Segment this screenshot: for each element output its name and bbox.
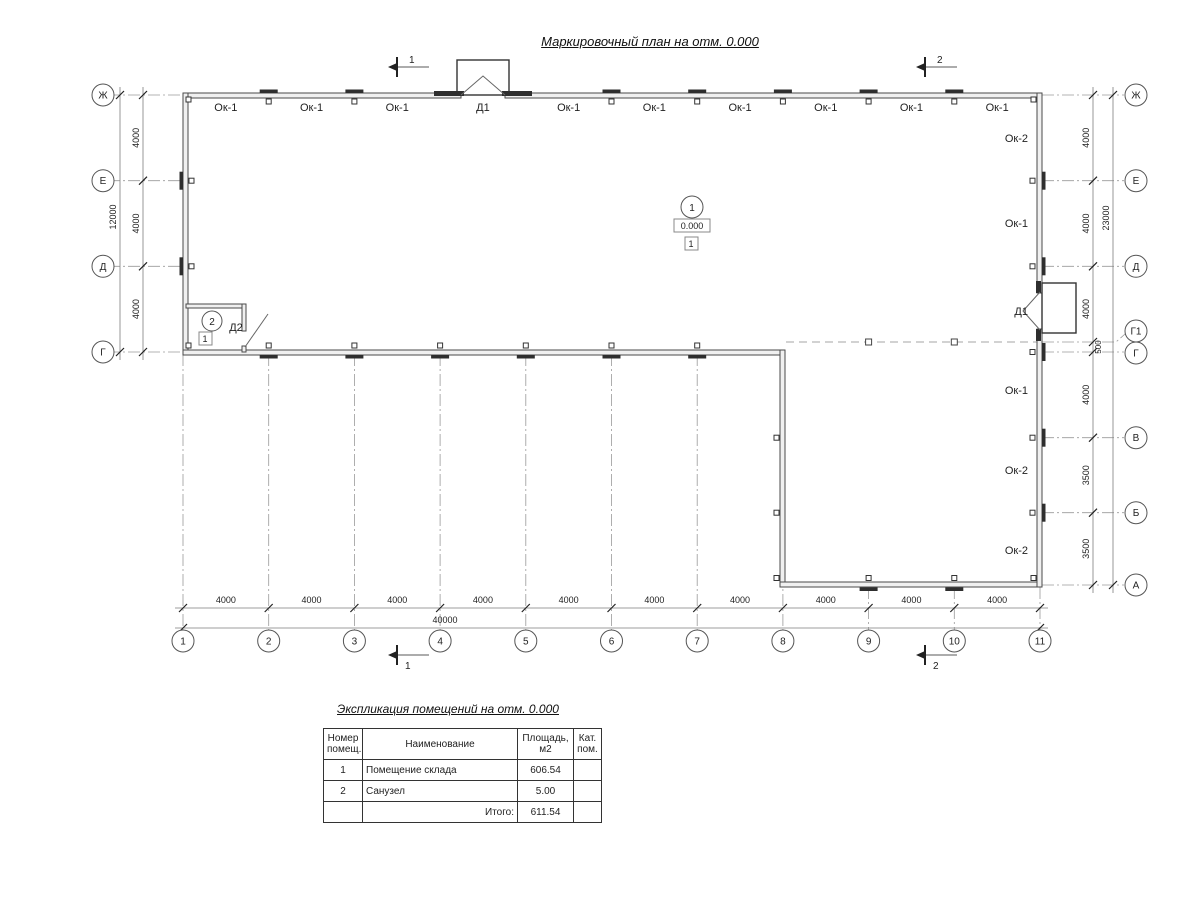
door2-leaf — [245, 314, 268, 347]
axis-label: 10 — [949, 637, 961, 648]
section-mark-2-number-bottom: 2 — [933, 661, 939, 672]
floor-plan: 4000400040001200040004000400050040003500… — [0, 0, 1200, 680]
wall-pilaster-plate — [860, 588, 878, 592]
wall-column-marker — [352, 99, 357, 104]
wall-bottom-right-wing — [780, 582, 1042, 587]
wall-column-marker — [266, 343, 271, 348]
dim-label: 4000 — [901, 595, 921, 605]
window-label: Ок-1 — [900, 102, 923, 114]
wall-column-marker — [952, 99, 957, 104]
window-label: Ок-1 — [557, 102, 580, 114]
window-label: Ок-2 — [1005, 133, 1028, 145]
table-total-row: Итого: 611.54 — [324, 802, 602, 823]
window-label: Ок-1 — [386, 102, 409, 114]
dim-label: 4000 — [987, 595, 1007, 605]
wall-pilaster-plate — [260, 90, 278, 94]
dim-label: 4000 — [387, 595, 407, 605]
wall-pilaster-plate — [945, 90, 963, 94]
cell-category — [574, 781, 602, 802]
window-label: Ок-1 — [643, 102, 666, 114]
section-mark-1-top: 1 — [388, 55, 429, 77]
axis-label: Г1 — [1131, 327, 1142, 338]
dim-label: 4000 — [216, 595, 236, 605]
door1-top-jamb-right — [502, 91, 532, 96]
wall-pilaster-plate — [1042, 429, 1046, 447]
header-name: Наименование — [363, 729, 518, 760]
wall-pilaster-plate — [1042, 343, 1046, 361]
plan-title: Маркировочный план на отм. 0.000 — [470, 34, 830, 49]
wall-pilaster-plate — [774, 90, 792, 94]
dim-label: 4000 — [131, 128, 141, 148]
wall-pilaster-plate — [1042, 257, 1046, 275]
wall-wc-top — [186, 304, 246, 308]
axis-label: Г — [100, 348, 106, 359]
dim-label: 4000 — [131, 213, 141, 233]
axis-label: 9 — [866, 637, 872, 648]
axis-label: В — [1133, 433, 1140, 444]
wall-pilaster-plate — [431, 355, 449, 359]
wall-pilaster-plate — [603, 355, 621, 359]
axis-label: Б — [1133, 508, 1140, 519]
explication-title: Экспликация помещений на отм. 0.000 — [323, 702, 573, 716]
dim-label: 4000 — [1081, 385, 1091, 405]
dim-label: 4000 — [131, 299, 141, 319]
wall-column-marker — [866, 576, 871, 581]
room2-number: 2 — [209, 317, 215, 328]
wall-pilaster-plate — [345, 355, 363, 359]
room1-number: 1 — [689, 203, 695, 214]
wall-pilaster-plate — [945, 588, 963, 592]
wall-pilaster-plate — [345, 90, 363, 94]
header-number: Номер помещ. — [324, 729, 363, 760]
entrance-porch-right — [1042, 283, 1076, 333]
door2-label: Д2 — [229, 322, 243, 334]
room1-category: 1 — [688, 239, 693, 249]
wall-column-marker — [780, 99, 785, 104]
wall-right-lower — [1037, 329, 1042, 587]
dim-label: 4000 — [816, 595, 836, 605]
axis-label: 5 — [523, 637, 529, 648]
wall-column-marker — [695, 343, 700, 348]
grid-lines — [108, 95, 1125, 630]
drawing-canvas: Маркировочный план на отм. 0.000 4000400… — [0, 0, 1200, 900]
wall-top-right-segment — [505, 93, 1040, 98]
dim-label: 4000 — [559, 595, 579, 605]
axis-label: Д — [1133, 262, 1140, 273]
wall-column-marker — [609, 343, 614, 348]
axis-label: 2 — [266, 637, 272, 648]
cell-name: Помещение склада — [363, 760, 518, 781]
wall-column-marker — [266, 99, 271, 104]
window-label: Ок-1 — [986, 102, 1009, 114]
wall-left — [183, 93, 188, 354]
axis-line-g1 — [1042, 334, 1125, 342]
axis-label: Г — [1133, 349, 1139, 360]
wall-column-marker — [695, 99, 700, 104]
cell-area: 606.54 — [518, 760, 574, 781]
axis-label: 1 — [180, 637, 186, 648]
cell-number: 1 — [324, 760, 363, 781]
wall-column-marker — [609, 99, 614, 104]
wall-pilaster-plate — [180, 172, 184, 190]
wall-column-marker — [774, 576, 779, 581]
walls — [183, 93, 1042, 587]
wall-column-marker — [1030, 264, 1035, 269]
axis-label: Е — [100, 176, 107, 187]
dim-label: 4000 — [302, 595, 322, 605]
wall-bottom-left-wing — [183, 350, 785, 355]
window-label: Ок-2 — [1005, 545, 1028, 557]
wall-column-marker — [352, 343, 357, 348]
axis-label: 4 — [437, 637, 443, 648]
dim-label: 3500 — [1081, 465, 1091, 485]
door-jambs — [434, 91, 1041, 341]
axis-label: 3 — [352, 637, 358, 648]
grid-column-marker — [866, 339, 872, 345]
section-marks: 1 2 1 2 — [388, 55, 957, 672]
wall-pilaster-plate — [517, 355, 535, 359]
dim-label: 4000 — [473, 595, 493, 605]
wall-right-upper — [1037, 93, 1042, 293]
table-row: 2 Санузел 5.00 — [324, 781, 602, 802]
wall-pilaster-plate — [688, 90, 706, 94]
door1-top-jamb-left — [434, 91, 464, 96]
wall-column-marker — [438, 343, 443, 348]
dim-label: 40000 — [432, 615, 457, 625]
dim-label: 4000 — [1081, 128, 1091, 148]
cell-number: 2 — [324, 781, 363, 802]
axis-label: 11 — [1035, 637, 1046, 648]
axis-bubbles: ЖЕДГЖЕДГ1ГВБА1234567891011 — [92, 84, 1147, 652]
explication: Экспликация помещений на отм. 0.000 Номе… — [323, 702, 573, 823]
dim-label: 4000 — [1081, 299, 1091, 319]
cell-category — [574, 760, 602, 781]
door1-right-jamb-upper — [1036, 281, 1041, 293]
axis-label: А — [1133, 581, 1140, 592]
wall-column-marker — [1031, 576, 1036, 581]
section-mark-1-number: 1 — [409, 55, 415, 66]
wall-column-marker — [774, 435, 779, 440]
wall-column-marker — [1030, 510, 1035, 515]
window-label: Ок-2 — [1005, 465, 1028, 477]
section-mark-2-top: 2 — [916, 55, 957, 77]
wall-pilaster-plate — [688, 355, 706, 359]
wall-wing-vertical — [780, 350, 785, 587]
room2-category: 1 — [202, 334, 207, 344]
wall-pilaster-plate — [603, 90, 621, 94]
grid-column-marker — [951, 339, 957, 345]
wall-pilaster-plate — [860, 90, 878, 94]
axis-label: 6 — [609, 637, 615, 648]
column-markers — [180, 90, 1046, 592]
axis-label: 7 — [694, 637, 700, 648]
wall-column-marker — [1030, 350, 1035, 355]
wall-column-marker — [1030, 435, 1035, 440]
opening-labels: Ок-1Ок-1Ок-1Д1Ок-1Ок-1Ок-1Ок-1Ок-1Ок-1Ок… — [214, 102, 1028, 557]
total-label: Итого: — [363, 802, 518, 823]
dim-label: 23000 — [1101, 205, 1111, 230]
wall-pilaster-plate — [260, 355, 278, 359]
axis-label: Ж — [98, 91, 108, 102]
axis-label: Д — [100, 262, 107, 273]
window-label: Ок-1 — [728, 102, 751, 114]
wall-column-marker — [186, 97, 191, 102]
explication-table: Номер помещ. Наименование Площадь, м2 Ка… — [323, 728, 602, 823]
axis-label: Е — [1133, 176, 1140, 187]
window-label: Ок-1 — [1005, 218, 1028, 230]
door-leaves — [245, 76, 1040, 347]
wall-column-marker — [189, 178, 194, 183]
dim-label: 4000 — [1081, 213, 1091, 233]
room1-elevation: 0.000 — [681, 221, 704, 231]
wall-column-marker — [1030, 178, 1035, 183]
wall-top-left-segment — [183, 93, 461, 98]
door-label: Д1 — [1014, 306, 1028, 318]
total-value: 611.54 — [518, 802, 574, 823]
table-header-row: Номер помещ. Наименование Площадь, м2 Ка… — [324, 729, 602, 760]
dim-label: 4000 — [730, 595, 750, 605]
window-label: Ок-1 — [214, 102, 237, 114]
door1-right-jamb-lower — [1036, 329, 1041, 341]
cell-empty — [324, 802, 363, 823]
dim-label: 12000 — [108, 204, 118, 229]
room2-marker: 2 1 — [199, 311, 222, 345]
cell-name: Санузел — [363, 781, 518, 802]
dim-label: 3500 — [1081, 539, 1091, 559]
section-mark-1-number-bottom: 1 — [405, 661, 411, 672]
window-label: Ок-1 — [1005, 385, 1028, 397]
dim-label: 500 — [1094, 340, 1103, 354]
axis-label: Ж — [1131, 91, 1141, 102]
wall-column-marker — [774, 510, 779, 515]
axis-label: 8 — [780, 637, 786, 648]
window-label: Ок-1 — [814, 102, 837, 114]
window-label: Ок-1 — [300, 102, 323, 114]
wall-column-marker — [1031, 97, 1036, 102]
section-mark-1-bottom: 1 — [388, 645, 429, 672]
wall-column-marker — [952, 576, 957, 581]
section-mark-2-number: 2 — [937, 55, 943, 66]
wall-column-marker — [866, 99, 871, 104]
room1-marker: 1 0.000 1 — [674, 196, 710, 250]
wall-pilaster-plate — [180, 257, 184, 275]
dim-label: 4000 — [644, 595, 664, 605]
header-area: Площадь, м2 — [518, 729, 574, 760]
wall-pilaster-plate — [1042, 172, 1046, 190]
wall-column-marker — [523, 343, 528, 348]
table-row: 1 Помещение склада 606.54 — [324, 760, 602, 781]
door-label: Д1 — [476, 102, 490, 114]
wall-column-marker — [186, 343, 191, 348]
cell-empty — [574, 802, 602, 823]
cell-area: 5.00 — [518, 781, 574, 802]
wall-column-marker — [189, 264, 194, 269]
wall-pilaster-plate — [1042, 504, 1046, 522]
entrance-porch-top — [457, 60, 509, 95]
dimension-lines: 4000400040001200040004000400050040003500… — [108, 87, 1117, 632]
header-category: Кат. пом. — [574, 729, 602, 760]
